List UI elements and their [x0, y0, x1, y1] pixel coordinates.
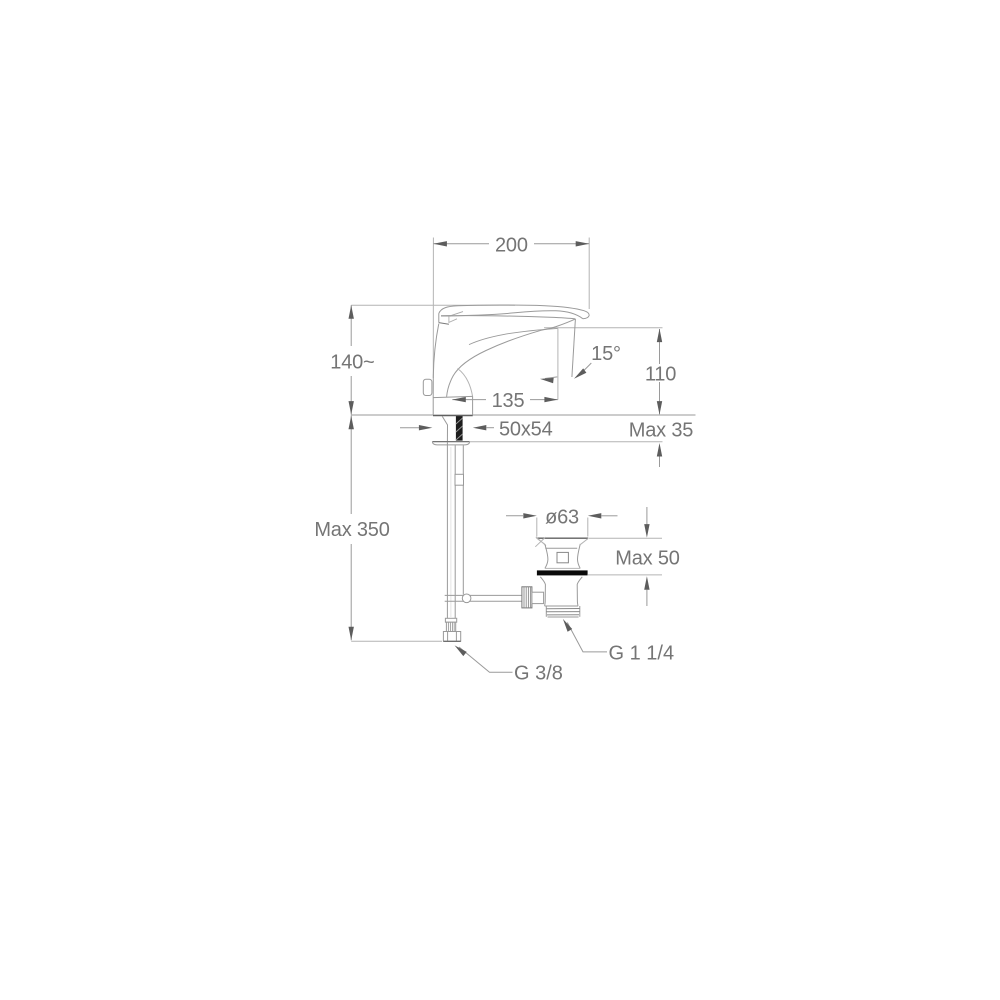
- svg-text:Max 35: Max 35: [629, 419, 693, 441]
- svg-text:Max 50: Max 50: [615, 548, 679, 570]
- svg-text:110: 110: [645, 363, 676, 385]
- svg-text:135: 135: [492, 390, 525, 412]
- svg-text:ø63: ø63: [545, 506, 579, 528]
- svg-text:140~: 140~: [330, 351, 374, 373]
- svg-text:200: 200: [495, 234, 528, 256]
- svg-text:G 3/8: G 3/8: [514, 663, 563, 685]
- svg-text:Max 350: Max 350: [314, 519, 389, 541]
- svg-text:50x54: 50x54: [499, 418, 553, 440]
- svg-text:G 1 1/4: G 1 1/4: [609, 642, 675, 664]
- svg-text:15°: 15°: [591, 343, 621, 365]
